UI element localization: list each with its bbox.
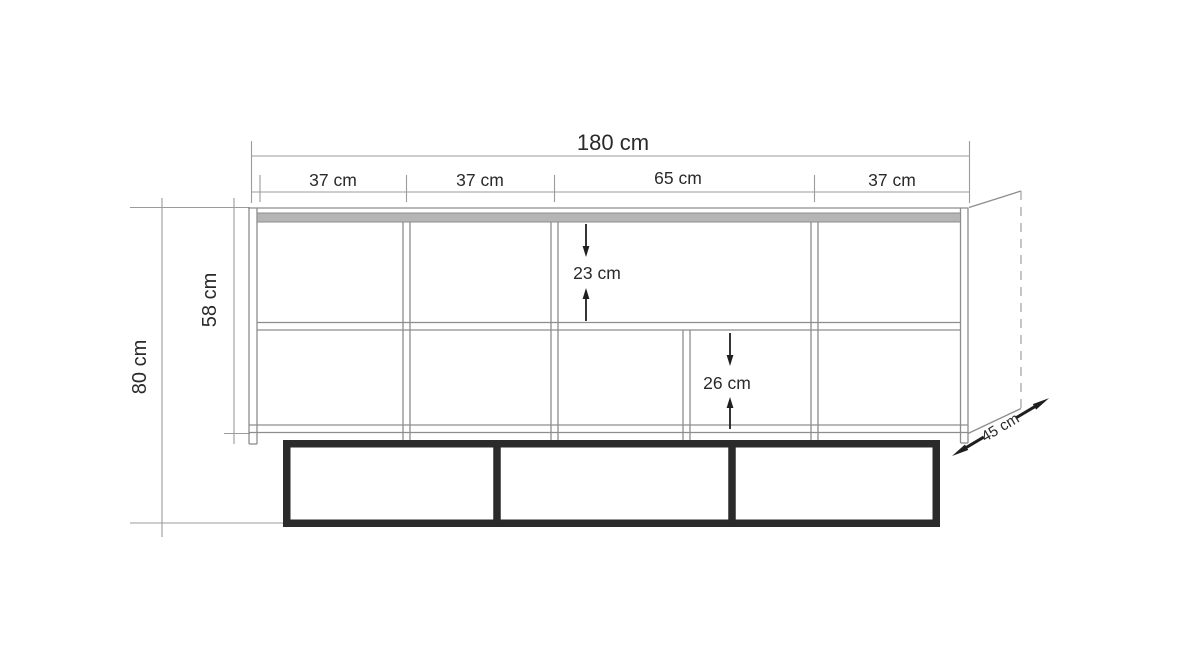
perspective-lines xyxy=(968,191,1021,434)
dimension-depth: 45 cm xyxy=(948,391,1054,463)
section-width-label: 37 cm xyxy=(309,170,357,190)
arrow-down-icon xyxy=(727,355,734,366)
top-panel-band xyxy=(257,213,961,222)
upper-compartment-label: 23 cm xyxy=(573,263,621,283)
arrow-line xyxy=(1016,406,1036,418)
body-height-label: 58 cm xyxy=(199,273,221,327)
lower-compartment-label: 26 cm xyxy=(703,373,751,393)
dimension-total-height: 80 cm xyxy=(129,198,284,537)
base-frame xyxy=(287,444,937,524)
cabinet-body xyxy=(248,208,969,444)
dimension-upper-compartment: 23 cm xyxy=(573,224,621,321)
section-width-label: 37 cm xyxy=(868,170,916,190)
furniture-dimension-diagram: 180 cm 37 cm 37 cm 65 cm 37 cm 80 cm 58 … xyxy=(0,0,1200,666)
dimension-body-height: 58 cm xyxy=(199,198,250,444)
arrow-right-icon xyxy=(1033,395,1051,409)
depth-label: 45 cm xyxy=(978,410,1022,446)
perspective-top-edge xyxy=(969,191,1021,208)
arrow-down-icon xyxy=(583,246,590,257)
section-width-label: 65 cm xyxy=(654,168,702,188)
base-outer-frame xyxy=(287,444,937,524)
technical-drawing-canvas: 180 cm 37 cm 37 cm 65 cm 37 cm 80 cm 58 … xyxy=(0,0,1200,666)
total-height-label: 80 cm xyxy=(129,340,151,394)
dimension-lower-compartment: 26 cm xyxy=(703,333,751,429)
total-width-label: 180 cm xyxy=(577,130,649,155)
dimension-sections: 37 cm 37 cm 65 cm 37 cm xyxy=(252,168,970,202)
section-width-label: 37 cm xyxy=(456,170,504,190)
